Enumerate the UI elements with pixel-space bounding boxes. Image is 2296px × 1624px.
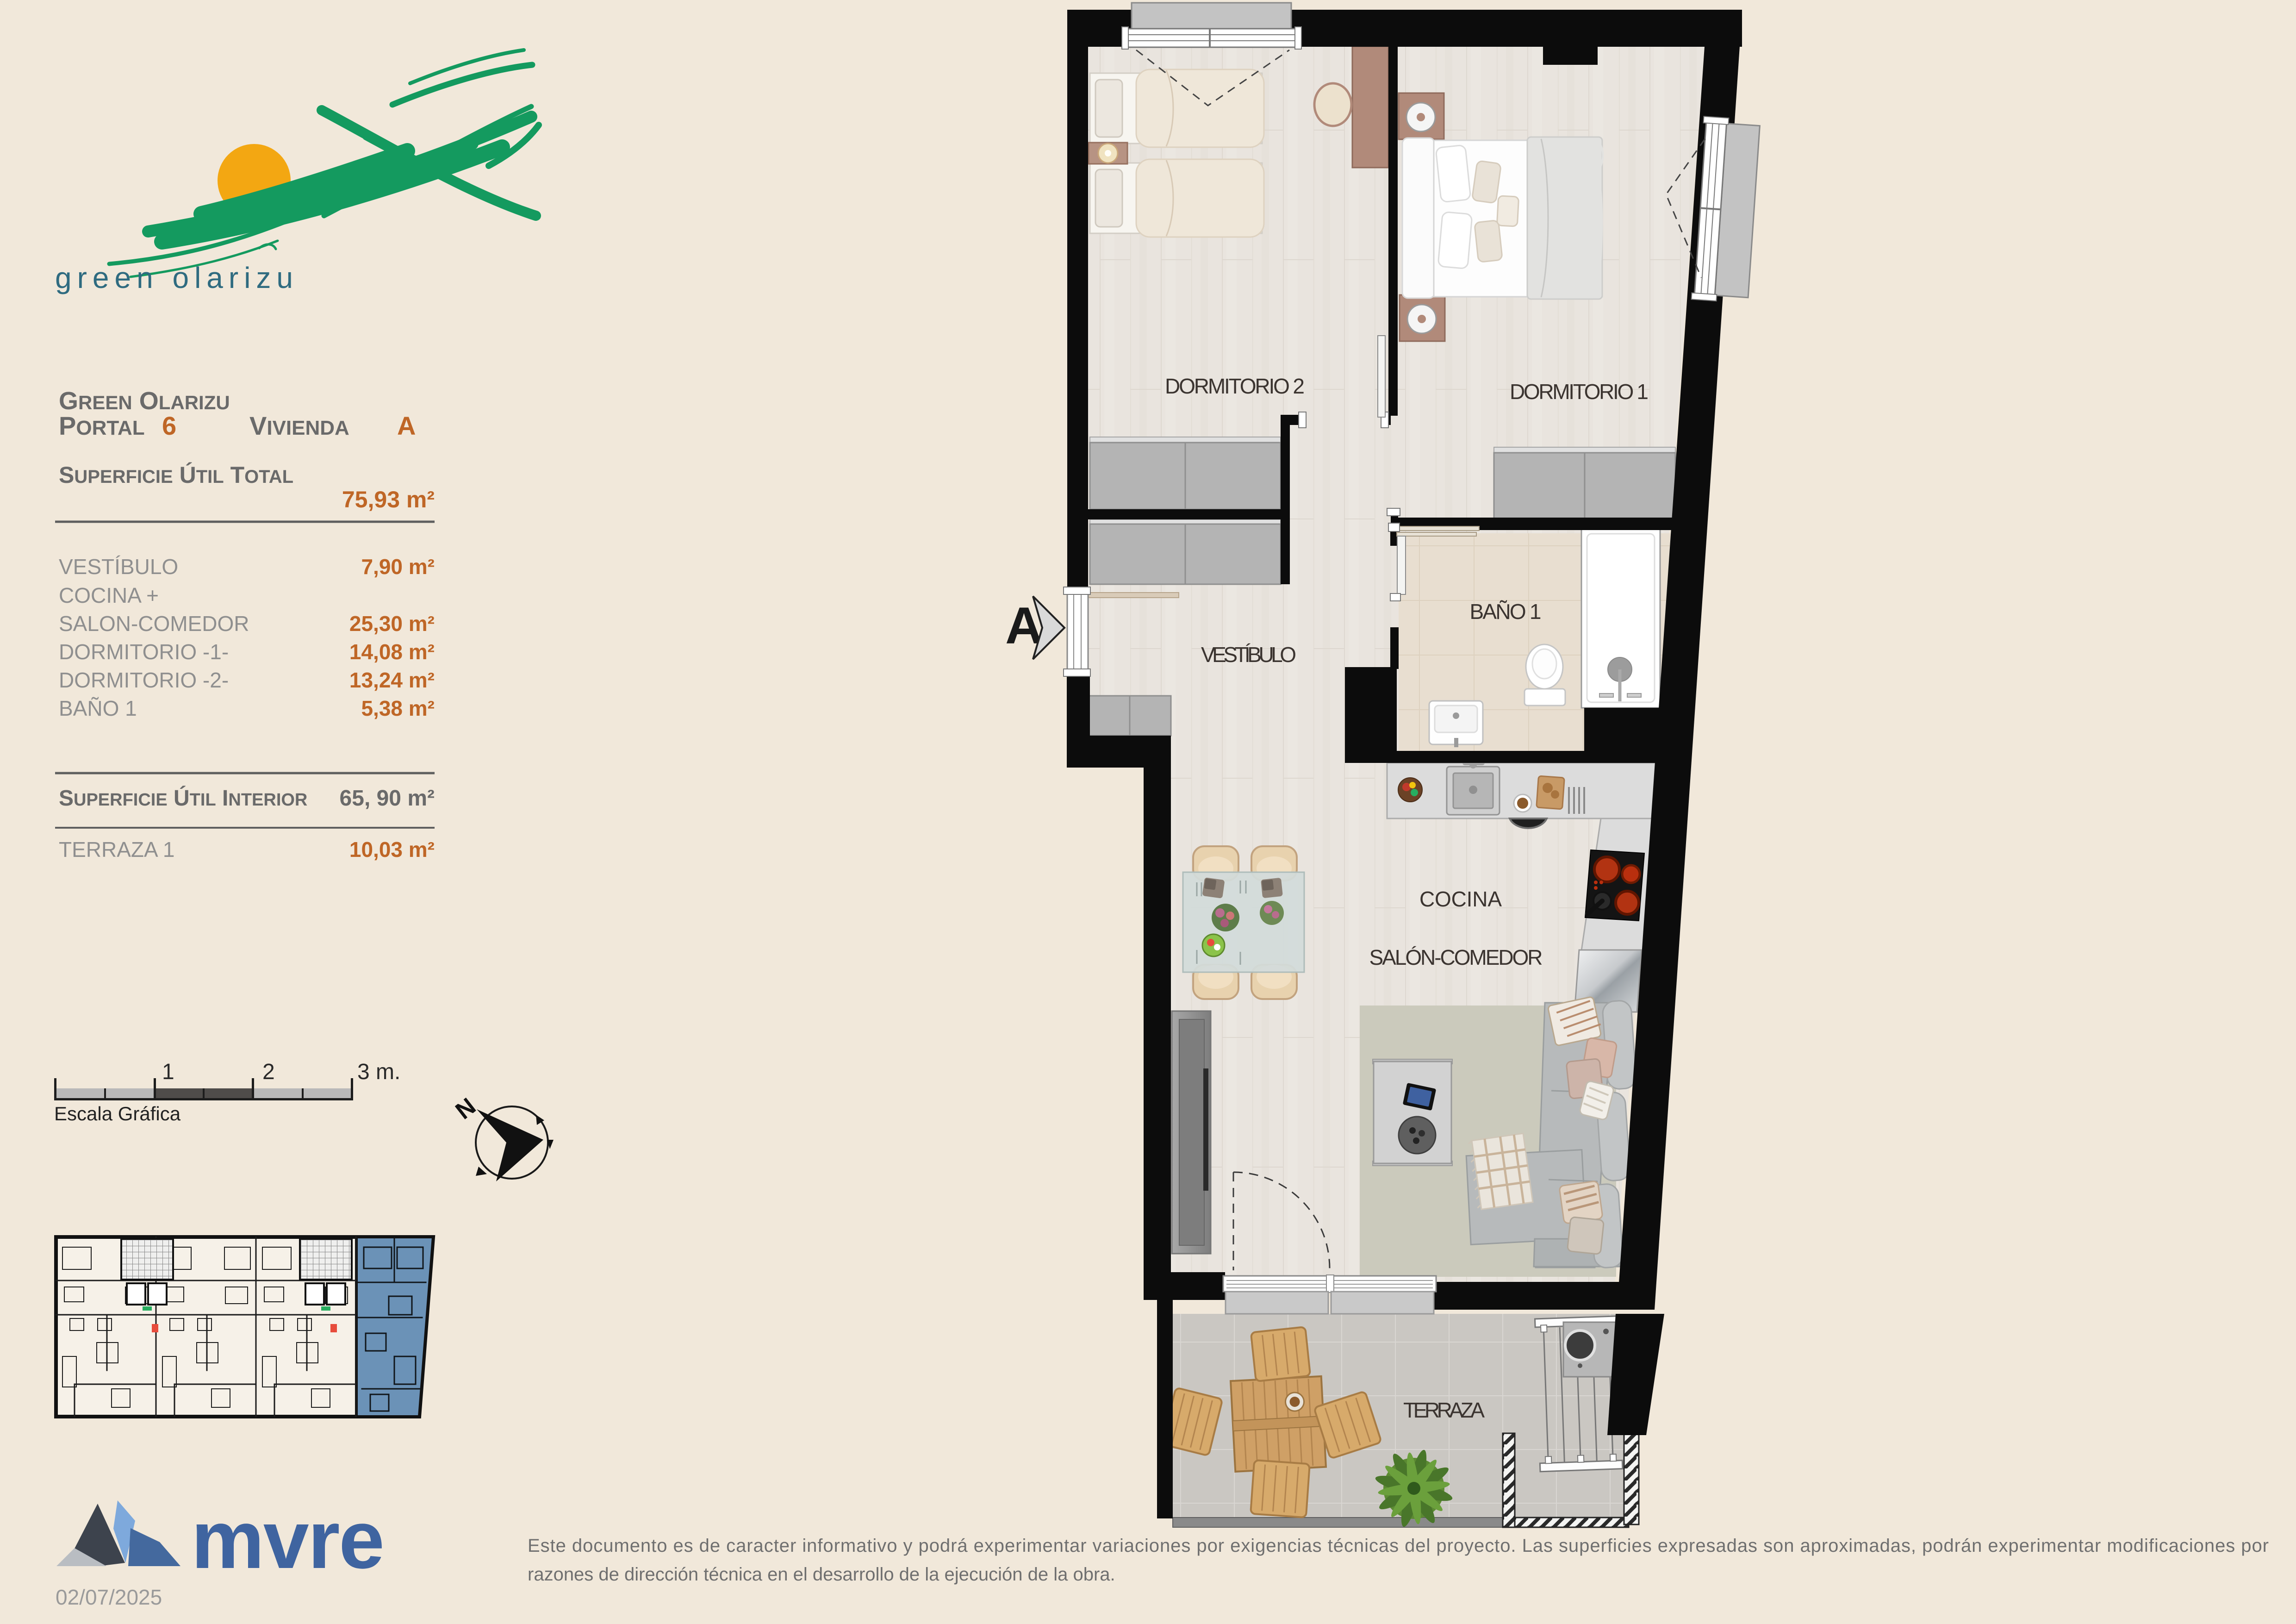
svg-text:razones de dirección técnica e: razones de dirección técnica en el desar… [528, 1564, 1115, 1585]
svg-text:5,38 m²: 5,38 m² [361, 696, 435, 720]
svg-text:Este documento es de caracter: Este documento es de caracter informativ… [528, 1536, 2269, 1556]
svg-text:65, 90 m²: 65, 90 m² [340, 786, 435, 811]
svg-text:DORMITORIO 1: DORMITORIO 1 [1510, 380, 1649, 404]
svg-text:1: 1 [162, 1060, 174, 1084]
svg-text:VESTÍBULO: VESTÍBULO [59, 555, 178, 579]
svg-text:DORMITORIO 2: DORMITORIO 2 [1165, 374, 1305, 398]
svg-text:COCINA +: COCINA + [59, 583, 159, 607]
svg-text:25,30 m²: 25,30 m² [349, 612, 435, 636]
svg-text:75,93 m²: 75,93 m² [342, 487, 435, 512]
svg-text:DORMITORIO -2-: DORMITORIO -2- [59, 668, 229, 692]
svg-text:VESTÍBULO: VESTÍBULO [1201, 643, 1296, 667]
svg-text:COCINA: COCINA [1419, 887, 1502, 911]
svg-text:7,90 m²: 7,90 m² [361, 555, 435, 579]
svg-text:TERRAZA 1: TERRAZA 1 [59, 837, 175, 862]
svg-text:green olarizu: green olarizu [55, 261, 299, 294]
svg-text:DORMITORIO -1-: DORMITORIO -1- [59, 640, 229, 664]
svg-text:SALÓN-COMEDOR: SALÓN-COMEDOR [1369, 945, 1543, 969]
svg-text:3 m.: 3 m. [357, 1060, 400, 1084]
svg-text:10,03 m²: 10,03 m² [349, 837, 435, 862]
svg-text:mvre: mvre [191, 1493, 385, 1586]
svg-text:A: A [397, 411, 416, 440]
svg-text:SALON-COMEDOR: SALON-COMEDOR [59, 612, 249, 636]
svg-text:TERRAZA: TERRAZA [1403, 1398, 1485, 1422]
svg-text:02/07/2025: 02/07/2025 [56, 1585, 162, 1609]
svg-text:BAÑO 1: BAÑO 1 [59, 696, 137, 720]
svg-text:13,24 m²: 13,24 m² [349, 668, 435, 692]
svg-text:Escala Gráfica: Escala Gráfica [54, 1103, 181, 1124]
svg-text:6: 6 [162, 411, 176, 440]
svg-text:BAÑO 1: BAÑO 1 [1470, 600, 1542, 624]
svg-text:2: 2 [262, 1060, 275, 1084]
svg-text:14,08 m²: 14,08 m² [349, 640, 435, 664]
